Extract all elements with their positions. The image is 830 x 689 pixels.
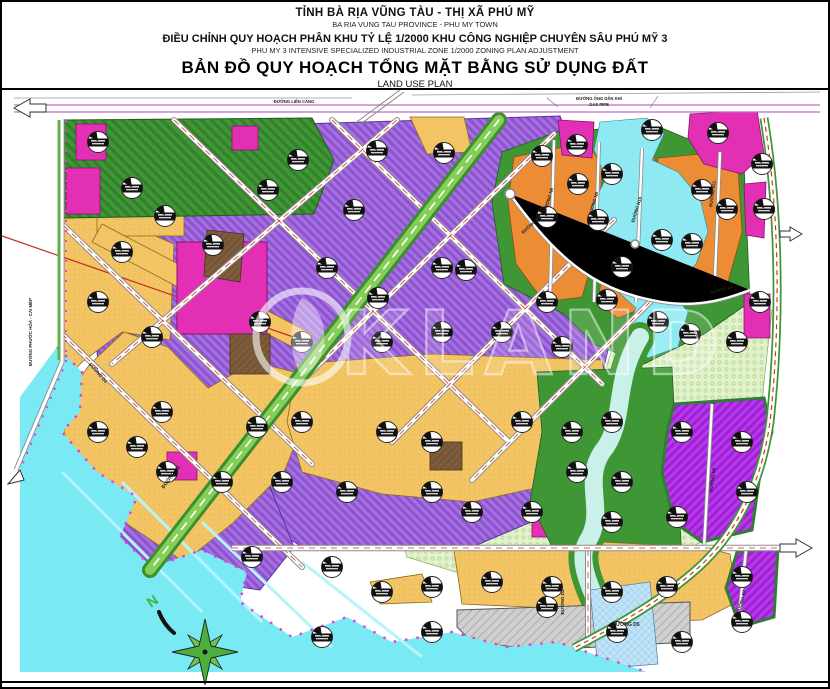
parcel-marker	[521, 502, 543, 523]
roundabout-1	[505, 189, 515, 199]
parcel-marker	[656, 577, 678, 598]
arrow-east-mid	[780, 227, 802, 241]
parcel-marker	[336, 482, 358, 503]
parcel-marker	[726, 332, 748, 353]
parcel-marker	[111, 242, 133, 263]
watermark-text: KLAND	[340, 292, 729, 395]
parcel-marker	[371, 582, 393, 603]
parcel-marker	[611, 257, 633, 278]
parcel-marker	[246, 417, 268, 438]
parcel-marker	[566, 462, 588, 483]
parcel-marker	[316, 258, 338, 279]
parcel-marker	[481, 572, 503, 593]
parcel-marker	[311, 627, 333, 648]
parcel-marker	[666, 507, 688, 528]
parcel-marker	[736, 482, 758, 503]
parcel-marker	[211, 472, 233, 493]
parcel-marker	[461, 502, 483, 523]
parcel-marker	[601, 512, 623, 533]
parcel-marker	[561, 422, 583, 443]
arrow-east	[780, 539, 812, 557]
parcel-marker	[681, 234, 703, 255]
road-label: ĐƯỜNG ỐNG DẪN KHÍ	[576, 96, 623, 101]
parcel-marker	[536, 597, 558, 618]
parcel-marker	[611, 472, 633, 493]
parcel-marker	[641, 120, 663, 141]
parcel-marker	[716, 199, 738, 220]
parcel-marker	[671, 422, 693, 443]
parcel-marker	[121, 178, 143, 199]
parcel-marker	[87, 132, 109, 153]
province-title-vi: TỈNH BÀ RỊA VŨNG TÀU - THỊ XÃ PHÚ MỸ	[2, 7, 828, 19]
title-block: TỈNH BÀ RỊA VŨNG TÀU - THỊ XÃ PHÚ MỸ BA …	[2, 2, 828, 90]
parcel-marker	[731, 612, 753, 633]
parcel-marker	[271, 472, 293, 493]
parcel-marker	[421, 622, 443, 643]
parcel-marker	[731, 567, 753, 588]
project-title-vi: ĐIỀU CHỈNH QUY HOẠCH PHÂN KHU TỶ LỆ 1/20…	[2, 33, 828, 45]
parcel-marker	[154, 206, 176, 227]
road-label: ĐƯỜNG PHƯỚC HÒA - CÁI MÉP	[28, 298, 33, 366]
roundabout-2	[631, 240, 639, 248]
parcel-marker	[651, 230, 673, 251]
parcel-marker	[567, 174, 589, 195]
parcel-marker	[321, 557, 343, 578]
parcel-marker	[707, 123, 729, 144]
province-title-en: BA RIA VUNG TAU PROVINCE - PHU MY TOWN	[2, 20, 828, 29]
map-title-vi: BẢN ĐỒ QUY HOẠCH TỔNG MẶT BẰNG SỬ DỤNG Đ…	[2, 58, 828, 78]
parcel-marker	[731, 432, 753, 453]
arrow-west	[14, 99, 46, 117]
parcel-marker	[343, 200, 365, 221]
zoning-map: ĐƯỜNG LIÊN CẢNGĐƯỜNG ỐNG DẪN KHÍGAS PIPE…	[2, 2, 830, 689]
land-use-plan-page: TỈNH BÀ RỊA VŨNG TÀU - THỊ XÃ PHÚ MỸ BA …	[0, 0, 830, 689]
parcel-marker	[126, 437, 148, 458]
parcel-marker	[433, 143, 455, 164]
parcel-marker	[141, 327, 163, 348]
parcel-marker	[87, 292, 109, 313]
parcel-marker	[291, 412, 313, 433]
parcel-marker	[287, 150, 309, 171]
parcel-marker	[257, 180, 279, 201]
parcel-marker	[671, 632, 693, 653]
parcel-marker	[511, 412, 533, 433]
road-label: GAS PIPE	[589, 102, 609, 107]
parcel-marker	[241, 547, 263, 568]
road-label: ĐƯỜNG D5	[612, 620, 640, 628]
parcel-marker	[455, 260, 477, 281]
parcel-marker	[601, 164, 623, 185]
parcel-marker	[366, 141, 388, 162]
parcel-marker	[751, 154, 773, 175]
parcel-marker	[376, 422, 398, 443]
road-label: ĐƯỜNG D2	[558, 589, 565, 615]
parcel-marker	[601, 412, 623, 433]
map-title-en: LAND USE PLAN	[2, 79, 828, 90]
road-label: ĐƯỜNG LIÊN CẢNG	[274, 99, 315, 104]
parcel-marker	[87, 422, 109, 443]
project-title-en: PHU MY 3 INTENSIVE SPECIALIZED INDUSTRIA…	[2, 46, 828, 55]
zone-pink-tl-3	[232, 126, 258, 150]
parcel-marker	[531, 146, 553, 167]
parcel-marker	[566, 135, 588, 156]
parcel-marker	[421, 432, 443, 453]
parcel-marker	[601, 582, 623, 603]
parcel-marker	[749, 292, 771, 313]
parcel-marker	[151, 402, 173, 423]
parcel-marker	[421, 482, 443, 503]
zone-pink-tl-1	[66, 168, 100, 214]
parcel-marker	[421, 577, 443, 598]
parcel-marker	[431, 258, 453, 279]
parcel-marker	[202, 235, 224, 256]
parcel-marker	[753, 199, 775, 220]
